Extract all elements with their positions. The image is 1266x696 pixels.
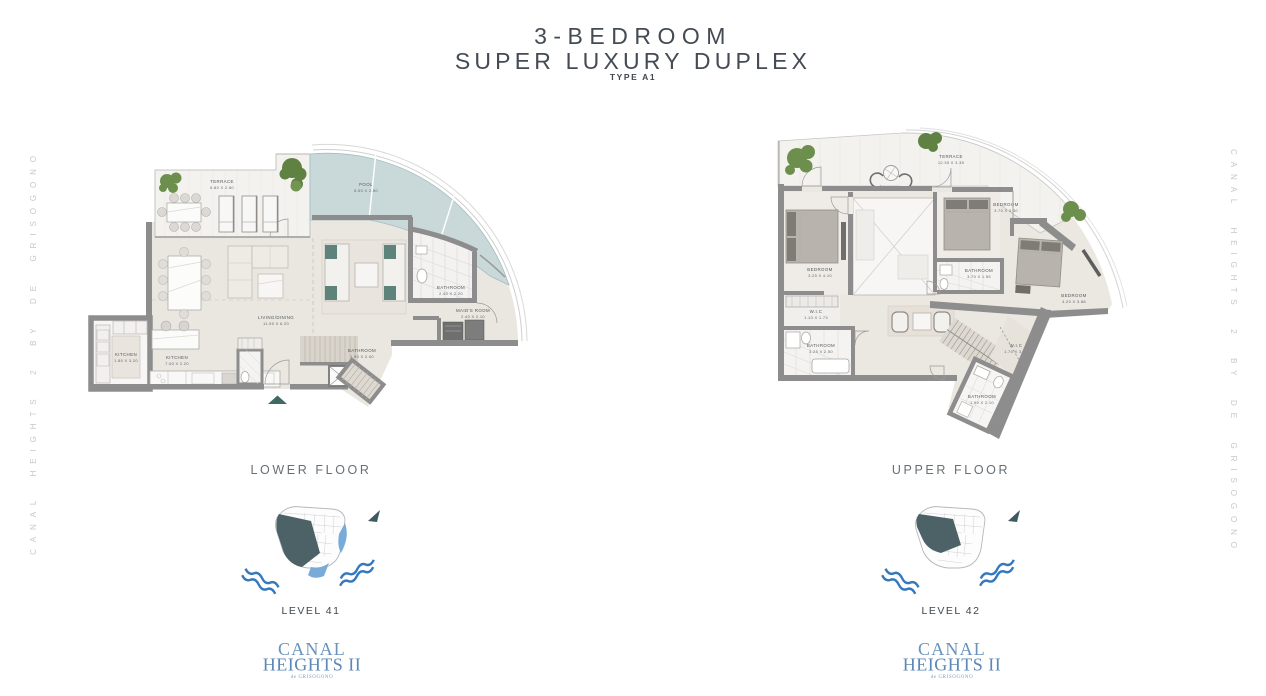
svg-text:11.50 X 6.20: 11.50 X 6.20 (263, 321, 289, 326)
svg-text:3.25 X 2.50: 3.25 X 2.50 (809, 349, 833, 354)
svg-text:8.50 X 2.50: 8.50 X 2.50 (354, 188, 378, 193)
svg-text:MAID'S ROOM: MAID'S ROOM (456, 308, 490, 313)
svg-text:de GRISOGONO: de GRISOGONO (291, 675, 334, 680)
svg-text:TERRACE: TERRACE (939, 154, 963, 159)
svg-text:TERRACE: TERRACE (210, 179, 234, 184)
svg-text:1.90 X 2.10: 1.90 X 2.10 (970, 400, 994, 405)
svg-text:BEDROOM: BEDROOM (1061, 293, 1087, 298)
svg-text:1.10 X 1.73: 1.10 X 1.73 (804, 315, 828, 320)
svg-text:3-BEDROOM: 3-BEDROOM (534, 23, 732, 49)
svg-text:UPPER FLOOR: UPPER FLOOR (892, 463, 1010, 477)
svg-text:1.90 X 2.00: 1.90 X 2.00 (350, 354, 374, 359)
svg-text:BEDROOM: BEDROOM (993, 202, 1019, 207)
svg-text:KITCHEN: KITCHEN (115, 352, 137, 357)
svg-text:BATHROOM: BATHROOM (965, 268, 993, 273)
svg-text:2.40 X 2.10: 2.40 X 2.10 (461, 314, 485, 319)
svg-text:1.80 X 3.20: 1.80 X 3.20 (114, 358, 138, 363)
svg-text:LIVING/DINING: LIVING/DINING (258, 315, 294, 320)
svg-text:6.80 X 2.80: 6.80 X 2.80 (210, 185, 234, 190)
svg-text:W.I.C: W.I.C (1010, 343, 1023, 348)
svg-text:BEDROOM: BEDROOM (807, 267, 833, 272)
svg-text:de GRISOGONO: de GRISOGONO (931, 675, 974, 680)
svg-text:LOWER FLOOR: LOWER FLOOR (251, 463, 372, 477)
svg-text:HEIGHTS II: HEIGHTS II (263, 655, 361, 675)
svg-text:HEIGHTS II: HEIGHTS II (903, 655, 1001, 675)
svg-text:BATHROOM: BATHROOM (968, 394, 996, 399)
svg-text:BATHROOM: BATHROOM (348, 348, 376, 353)
svg-text:KITCHEN: KITCHEN (166, 355, 188, 360)
svg-text:SUPER LUXURY DUPLEX: SUPER LUXURY DUPLEX (455, 48, 811, 74)
svg-text:TYPE A1: TYPE A1 (610, 72, 656, 82)
svg-text:4.20 X 3.88: 4.20 X 3.88 (1062, 299, 1086, 304)
svg-text:W.I.C: W.I.C (810, 309, 823, 314)
svg-text:7.00 X 2.20: 7.00 X 2.20 (165, 361, 189, 366)
svg-text:BATHROOM: BATHROOM (437, 285, 465, 290)
svg-text:12.35 X 3.35: 12.35 X 3.35 (938, 160, 965, 165)
svg-text:LEVEL 41: LEVEL 41 (282, 605, 341, 617)
svg-text:CANAL HEIGHTS 2 BY DE GRISOGON: CANAL HEIGHTS 2 BY DE GRISOGONO (1229, 149, 1238, 555)
svg-text:3.70 X 3.50: 3.70 X 3.50 (994, 208, 1018, 213)
svg-text:3.70 X 1.55: 3.70 X 1.55 (967, 274, 991, 279)
svg-text:CANAL HEIGHTS 2 BY DE GRISOGON: CANAL HEIGHTS 2 BY DE GRISOGONO (29, 149, 38, 555)
svg-text:2.40 X 2.20: 2.40 X 2.20 (439, 291, 463, 296)
svg-text:POOL: POOL (359, 182, 373, 187)
svg-text:BATHROOM: BATHROOM (807, 343, 835, 348)
svg-text:LEVEL 42: LEVEL 42 (922, 605, 981, 617)
svg-text:3.25 X 4.10: 3.25 X 4.10 (808, 273, 832, 278)
